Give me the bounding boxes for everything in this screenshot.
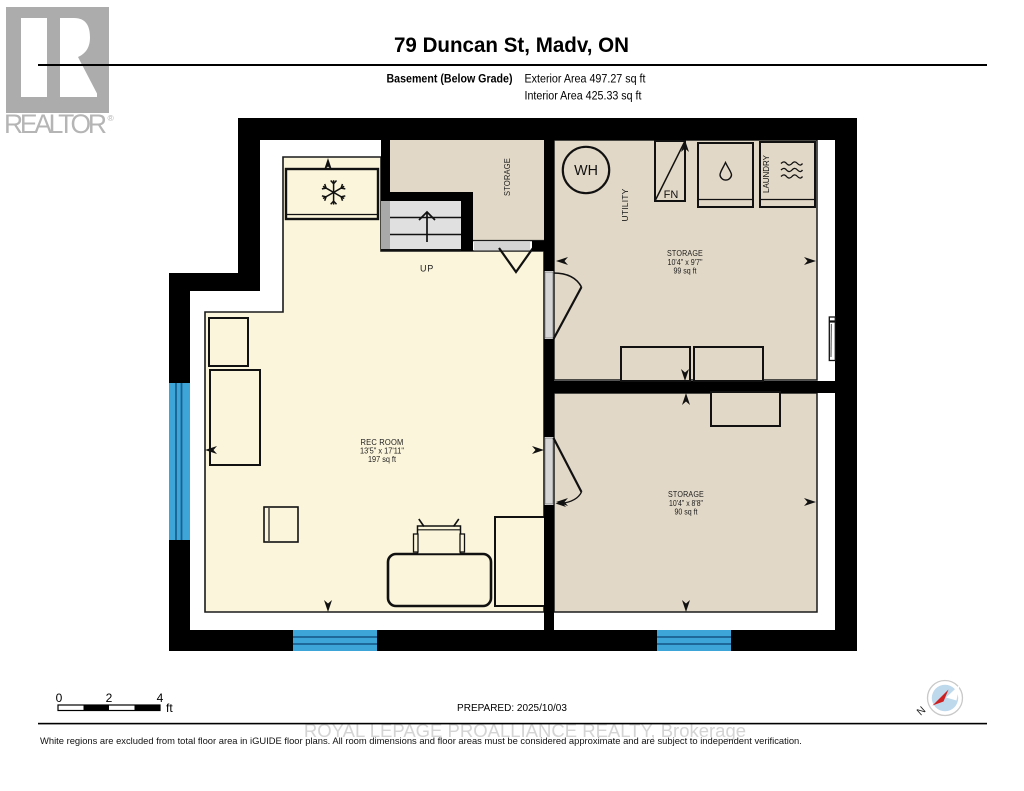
svg-text:99 sq ft: 99 sq ft: [674, 267, 698, 276]
svg-text:197 sq ft: 197 sq ft: [368, 455, 397, 464]
svg-text:ft: ft: [166, 701, 173, 715]
svg-text:LAUNDRY: LAUNDRY: [762, 154, 771, 193]
svg-text:®: ®: [108, 113, 115, 123]
svg-text:UTILITY: UTILITY: [620, 188, 630, 221]
svg-text:0: 0: [56, 691, 63, 705]
svg-text:2: 2: [106, 691, 113, 705]
svg-text:N: N: [915, 704, 929, 718]
svg-text:90 sq ft: 90 sq ft: [675, 508, 699, 517]
svg-text:UP: UP: [420, 264, 434, 274]
svg-text:Exterior Area 497.27 sq ft: Exterior Area 497.27 sq ft: [525, 72, 647, 86]
svg-text:Interior Area 425.33 sq ft: Interior Area 425.33 sq ft: [525, 89, 643, 103]
svg-text:STORAGE: STORAGE: [668, 489, 704, 499]
svg-text:FN: FN: [664, 189, 679, 201]
svg-text:White regions are excluded fro: White regions are excluded from total fl…: [40, 735, 802, 746]
svg-text:STORAGE: STORAGE: [502, 158, 512, 196]
svg-text:PREPARED: 2025/10/03: PREPARED: 2025/10/03: [457, 703, 567, 714]
svg-text:REC ROOM: REC ROOM: [361, 437, 404, 447]
svg-text:STORAGE: STORAGE: [667, 248, 703, 258]
svg-text:79 Duncan St, Madv, ON: 79 Duncan St, Madv, ON: [394, 34, 629, 57]
svg-text:REALTOR: REALTOR: [4, 109, 107, 139]
svg-text:Basement (Below Grade): Basement (Below Grade): [387, 72, 513, 86]
svg-text:WH: WH: [574, 163, 598, 179]
svg-text:4: 4: [157, 691, 164, 705]
